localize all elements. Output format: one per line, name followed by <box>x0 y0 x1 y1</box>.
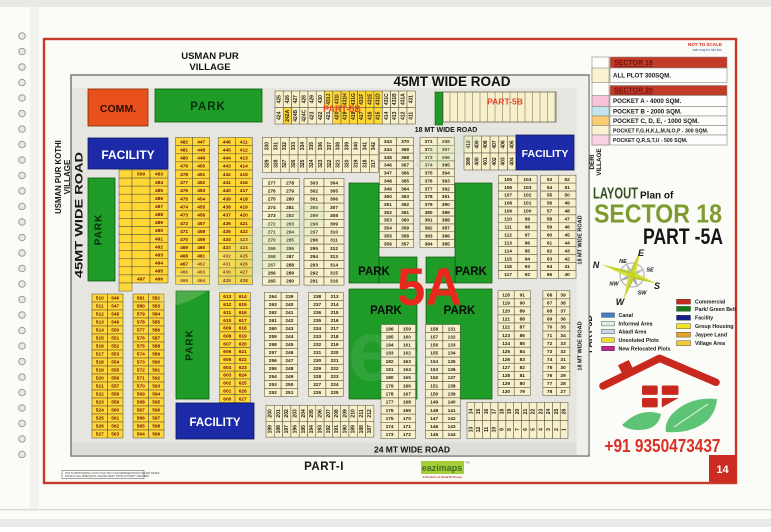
svg-text:21: 21 <box>523 409 529 415</box>
svg-text:491: 491 <box>155 236 163 242</box>
svg-text:294: 294 <box>310 254 318 260</box>
svg-text:195: 195 <box>301 425 307 434</box>
svg-text:137: 137 <box>448 375 456 381</box>
svg-text:449: 449 <box>197 156 205 162</box>
svg-text:566: 566 <box>137 416 145 422</box>
svg-text:330: 330 <box>264 142 270 151</box>
svg-text:624: 624 <box>239 373 247 379</box>
svg-text:427: 427 <box>293 95 299 104</box>
svg-text:361: 361 <box>401 210 409 216</box>
svg-text:559: 559 <box>111 400 119 406</box>
svg-text:408: 408 <box>483 140 489 149</box>
svg-text:380: 380 <box>425 210 433 216</box>
svg-text:14: 14 <box>716 464 729 476</box>
svg-text:13: 13 <box>468 427 474 433</box>
svg-text:440: 440 <box>223 188 231 194</box>
svg-text:257: 257 <box>269 350 277 356</box>
svg-text:404: 404 <box>509 157 515 166</box>
svg-text:389: 389 <box>442 210 450 216</box>
svg-text:296: 296 <box>310 238 318 244</box>
svg-text:569: 569 <box>137 392 145 398</box>
svg-text:74: 74 <box>547 357 553 363</box>
svg-text:306: 306 <box>330 197 338 203</box>
svg-text:109: 109 <box>504 209 512 215</box>
svg-text:28: 28 <box>560 381 566 387</box>
svg-text:201: 201 <box>276 409 282 418</box>
svg-text:444: 444 <box>223 156 231 162</box>
svg-text:354: 354 <box>384 226 392 232</box>
svg-text:412: 412 <box>400 111 406 120</box>
svg-text:522: 522 <box>96 392 104 398</box>
svg-text:413: 413 <box>240 156 248 162</box>
svg-text:260: 260 <box>269 326 277 332</box>
svg-text:385: 385 <box>442 241 450 247</box>
svg-text:18 MT WIDE ROAD: 18 MT WIDE ROAD <box>578 215 584 264</box>
svg-text:103: 103 <box>523 185 531 191</box>
svg-text:365: 365 <box>401 178 409 184</box>
svg-text:65: 65 <box>547 272 553 278</box>
svg-text:174: 174 <box>386 424 394 430</box>
svg-text:NE: NE <box>619 259 627 265</box>
svg-text:348: 348 <box>384 178 392 184</box>
svg-text:547: 547 <box>111 304 119 310</box>
svg-text:THIS IS APPROXIMATE LAYOUT PLA: THIS IS APPROXIMATE LAYOUT PLAN ONLY FOR… <box>65 472 160 475</box>
svg-text:124: 124 <box>502 341 510 347</box>
svg-text:111: 111 <box>504 225 512 231</box>
svg-text:485: 485 <box>155 188 163 194</box>
svg-text:175: 175 <box>386 416 394 422</box>
svg-text:188: 188 <box>359 425 365 434</box>
svg-text:Group Housing: Group Housing <box>695 324 734 330</box>
svg-text:323: 323 <box>318 159 324 168</box>
svg-text:VILLAGE: VILLAGE <box>189 62 230 73</box>
svg-text:255: 255 <box>269 366 277 372</box>
svg-text:477: 477 <box>180 180 188 186</box>
svg-text:384: 384 <box>425 241 433 247</box>
svg-text:382: 382 <box>425 226 433 232</box>
svg-text:82: 82 <box>520 365 526 371</box>
svg-text:521: 521 <box>96 384 104 390</box>
svg-text:125: 125 <box>502 349 510 355</box>
svg-text:123: 123 <box>502 333 510 339</box>
svg-text:332: 332 <box>282 142 288 151</box>
svg-text:205: 205 <box>309 409 315 418</box>
svg-text:1: 1 <box>562 428 568 431</box>
svg-text:387: 387 <box>442 226 450 232</box>
svg-text:549: 549 <box>111 320 119 326</box>
svg-text:377: 377 <box>425 186 433 192</box>
svg-text:211: 211 <box>359 409 365 417</box>
svg-text:5: 5 <box>531 428 537 431</box>
svg-text:10: 10 <box>492 427 498 433</box>
svg-text:A Product of SmartR Group: A Product of SmartR Group <box>422 475 461 479</box>
svg-text:349: 349 <box>384 186 392 192</box>
svg-text:454: 454 <box>197 196 205 202</box>
svg-text:226: 226 <box>313 390 321 396</box>
svg-text:621: 621 <box>239 349 247 355</box>
svg-text:59: 59 <box>547 225 553 231</box>
svg-text:133: 133 <box>448 343 456 349</box>
svg-text:USMAN PUR: USMAN PUR <box>181 51 239 62</box>
svg-text:520: 520 <box>96 376 104 382</box>
svg-text:110: 110 <box>504 217 512 223</box>
svg-text:38: 38 <box>560 301 566 307</box>
svg-text:423: 423 <box>310 111 316 120</box>
svg-text:556: 556 <box>111 376 119 382</box>
svg-text:576: 576 <box>137 336 145 342</box>
svg-text:254: 254 <box>269 374 277 380</box>
svg-text:187: 187 <box>367 425 373 434</box>
svg-text:371: 371 <box>425 139 433 145</box>
svg-text:253: 253 <box>269 382 277 388</box>
svg-text:438: 438 <box>223 205 231 211</box>
svg-text:232: 232 <box>313 342 321 348</box>
svg-text:SECTOR 18: SECTOR 18 <box>614 60 653 67</box>
svg-text:170: 170 <box>403 416 411 422</box>
svg-text:570: 570 <box>137 384 145 390</box>
svg-text:483: 483 <box>155 172 163 178</box>
svg-text:115: 115 <box>504 256 512 262</box>
svg-text:460: 460 <box>197 245 205 251</box>
svg-text:197: 197 <box>284 425 290 434</box>
svg-text:353: 353 <box>384 218 392 224</box>
svg-text:509: 509 <box>137 172 145 178</box>
svg-text:431A: 431A <box>400 93 406 105</box>
svg-text:34: 34 <box>560 333 566 339</box>
svg-text:sale map for site info: sale map for site info <box>693 48 723 52</box>
svg-text:40: 40 <box>565 272 571 278</box>
svg-text:493: 493 <box>155 252 163 258</box>
svg-text:105: 105 <box>504 177 512 183</box>
svg-text:217: 217 <box>331 326 339 332</box>
svg-text:37: 37 <box>560 309 566 315</box>
svg-text:472: 472 <box>180 221 188 227</box>
svg-text:233: 233 <box>313 334 321 340</box>
svg-text:492: 492 <box>155 244 163 250</box>
svg-text:Facility: Facility <box>695 316 713 322</box>
svg-text:428: 428 <box>301 95 307 104</box>
svg-text:443: 443 <box>223 164 231 170</box>
svg-text:424B: 424B <box>293 109 299 121</box>
svg-text:484: 484 <box>155 180 163 186</box>
svg-text:564: 564 <box>137 432 145 438</box>
svg-text:139: 139 <box>448 392 456 398</box>
svg-text:471: 471 <box>180 229 188 235</box>
svg-text:329: 329 <box>264 159 270 168</box>
svg-text:277: 277 <box>268 180 276 186</box>
svg-text:64: 64 <box>547 264 553 270</box>
svg-text:320: 320 <box>345 159 351 168</box>
svg-text:276: 276 <box>268 189 276 195</box>
svg-text:431D: 431D <box>376 93 382 105</box>
svg-text:401: 401 <box>483 157 489 166</box>
svg-text:36: 36 <box>560 317 566 323</box>
svg-text:289: 289 <box>286 271 294 277</box>
svg-text:107: 107 <box>504 193 512 199</box>
svg-text:FACILITY: FACILITY <box>189 417 240 429</box>
svg-text:355: 355 <box>384 234 392 240</box>
svg-text:274: 274 <box>268 205 276 211</box>
svg-text:313: 313 <box>330 254 338 260</box>
svg-text:416: 416 <box>367 111 373 120</box>
svg-text:415: 415 <box>240 172 248 178</box>
svg-text:611: 611 <box>223 310 231 316</box>
svg-text:351: 351 <box>384 202 392 208</box>
svg-text:77: 77 <box>547 381 553 387</box>
svg-text:445: 445 <box>223 147 231 153</box>
svg-text:122: 122 <box>502 325 510 331</box>
svg-text:259: 259 <box>269 334 277 340</box>
svg-text:172: 172 <box>403 432 411 438</box>
svg-text:510: 510 <box>96 296 104 302</box>
svg-text:523: 523 <box>96 400 104 406</box>
svg-text:435: 435 <box>223 229 231 235</box>
svg-text:PART-5B: PART-5B <box>487 97 523 107</box>
svg-text:526: 526 <box>96 424 104 430</box>
svg-text:370: 370 <box>401 139 409 145</box>
svg-text:411: 411 <box>240 139 248 145</box>
svg-text:53: 53 <box>547 177 553 183</box>
svg-text:191: 191 <box>334 425 340 434</box>
svg-text:571: 571 <box>137 376 145 382</box>
svg-text:341: 341 <box>362 142 368 151</box>
svg-text:100: 100 <box>523 209 531 215</box>
svg-text:138: 138 <box>448 383 456 389</box>
svg-text:PART-I: PART-I <box>304 461 344 473</box>
svg-text:242: 242 <box>285 318 293 324</box>
svg-text:68: 68 <box>547 309 553 315</box>
svg-text:476: 476 <box>180 188 188 194</box>
svg-text:425: 425 <box>277 95 283 104</box>
svg-text:473: 473 <box>180 213 188 219</box>
svg-text:101: 101 <box>523 201 531 207</box>
svg-text:609: 609 <box>223 326 231 332</box>
svg-text:359: 359 <box>401 226 409 232</box>
svg-text:85: 85 <box>520 341 526 347</box>
svg-text:347: 347 <box>384 171 392 177</box>
svg-text:412: 412 <box>240 147 248 153</box>
svg-text:194: 194 <box>309 425 315 434</box>
svg-text:134: 134 <box>448 351 456 357</box>
svg-text:326: 326 <box>291 159 297 168</box>
svg-text:244: 244 <box>285 334 293 340</box>
svg-text:17: 17 <box>492 409 498 415</box>
svg-text:190: 190 <box>342 425 348 434</box>
svg-text:26: 26 <box>562 409 568 415</box>
svg-text:584: 584 <box>152 312 160 318</box>
svg-text:459: 459 <box>197 237 205 243</box>
svg-text:44: 44 <box>565 240 571 246</box>
svg-text:470: 470 <box>180 237 188 243</box>
svg-text:56: 56 <box>547 201 553 207</box>
svg-text:45MT WIDE ROAD: 45MT WIDE ROAD <box>393 74 510 89</box>
svg-text:548: 548 <box>111 312 119 318</box>
svg-text:421: 421 <box>240 221 248 227</box>
svg-text:8: 8 <box>507 428 513 431</box>
svg-text:46: 46 <box>565 225 571 231</box>
svg-text:27: 27 <box>560 389 566 395</box>
svg-text:431I: 431I <box>334 94 340 104</box>
svg-text:210: 210 <box>351 409 357 418</box>
svg-text:147: 147 <box>430 416 438 422</box>
svg-text:419: 419 <box>240 205 248 211</box>
svg-text:553: 553 <box>111 352 119 358</box>
svg-text:607: 607 <box>223 341 231 347</box>
svg-text:601: 601 <box>223 388 231 394</box>
svg-text:515: 515 <box>96 336 104 342</box>
svg-text:203: 203 <box>293 409 299 418</box>
svg-text:448: 448 <box>197 147 205 153</box>
svg-text:557: 557 <box>111 384 119 390</box>
svg-text:431C: 431C <box>384 93 390 105</box>
svg-text:106: 106 <box>504 185 512 191</box>
svg-text:NOT TO SCALE: NOT TO SCALE <box>688 42 722 47</box>
svg-text:87: 87 <box>520 325 526 331</box>
svg-text:317: 317 <box>371 159 377 168</box>
svg-text:PARK: PARK <box>358 266 390 278</box>
svg-text:24: 24 <box>546 409 552 415</box>
svg-text:198: 198 <box>276 425 282 434</box>
svg-text:47: 47 <box>565 217 571 223</box>
svg-text:50: 50 <box>565 193 571 199</box>
svg-text:204: 204 <box>301 409 307 418</box>
svg-text:209: 209 <box>342 409 348 418</box>
svg-text:364: 364 <box>401 186 409 192</box>
svg-text:327: 327 <box>282 159 288 168</box>
svg-text:475: 475 <box>180 196 188 202</box>
svg-text:279: 279 <box>286 189 294 195</box>
svg-text:239: 239 <box>285 294 293 300</box>
svg-text:456: 456 <box>197 213 205 219</box>
svg-text:62: 62 <box>547 248 553 254</box>
svg-text:129: 129 <box>502 381 510 387</box>
svg-text:455: 455 <box>197 205 205 211</box>
svg-text:57: 57 <box>547 209 553 215</box>
svg-text:242A: 242A <box>285 109 291 121</box>
svg-text:426: 426 <box>285 95 291 104</box>
svg-text:437: 437 <box>223 213 231 219</box>
svg-text:+91 9350473437: +91 9350473437 <box>605 435 721 456</box>
svg-text:394: 394 <box>442 171 450 177</box>
svg-text:293: 293 <box>310 262 318 268</box>
svg-text:340: 340 <box>353 142 359 151</box>
svg-text:623: 623 <box>239 365 247 371</box>
svg-text:403: 403 <box>501 157 507 166</box>
svg-text:79: 79 <box>520 389 526 395</box>
svg-text:95: 95 <box>525 248 531 254</box>
svg-text:417: 417 <box>240 188 248 194</box>
svg-text:567: 567 <box>137 408 145 414</box>
svg-text:Park/ Green Belt: Park/ Green Belt <box>695 307 736 313</box>
svg-text:431B: 431B <box>392 93 398 105</box>
svg-text:512: 512 <box>96 312 104 318</box>
svg-text:20: 20 <box>515 409 521 415</box>
svg-text:447: 447 <box>197 139 205 145</box>
svg-text:84: 84 <box>520 349 526 355</box>
svg-text:126: 126 <box>502 357 510 363</box>
svg-text:ALL PLOT 300SQM.: ALL PLOT 300SQM. <box>613 72 671 79</box>
svg-text:469: 469 <box>180 245 188 251</box>
svg-text:375: 375 <box>425 171 433 177</box>
svg-text:94: 94 <box>525 256 531 262</box>
svg-text:453: 453 <box>197 188 205 194</box>
svg-text:140: 140 <box>448 400 456 406</box>
svg-text:618: 618 <box>239 326 247 332</box>
svg-text:212: 212 <box>367 409 373 418</box>
svg-text:346: 346 <box>384 163 392 169</box>
svg-text:352: 352 <box>384 210 392 216</box>
svg-text:7: 7 <box>515 428 521 431</box>
svg-text:597: 597 <box>152 416 160 422</box>
svg-text:91: 91 <box>520 293 526 299</box>
svg-text:572: 572 <box>137 368 145 374</box>
svg-text:478: 478 <box>180 172 188 178</box>
svg-text:278: 278 <box>286 180 294 186</box>
svg-text:78: 78 <box>547 389 553 395</box>
svg-text:252: 252 <box>269 390 277 396</box>
svg-text:243: 243 <box>285 326 293 332</box>
svg-text:Abadi Area: Abadi Area <box>619 330 647 336</box>
svg-text:441: 441 <box>223 180 231 186</box>
svg-text:431: 431 <box>409 95 415 104</box>
svg-text:393: 393 <box>442 178 450 184</box>
svg-text:81: 81 <box>520 373 526 379</box>
svg-text:208: 208 <box>334 409 340 418</box>
svg-text:392: 392 <box>442 186 450 192</box>
svg-text:52: 52 <box>565 177 571 183</box>
svg-text:Unsoluted Plots: Unsoluted Plots <box>619 338 659 344</box>
svg-text:49: 49 <box>565 201 571 207</box>
svg-text:295: 295 <box>310 246 318 252</box>
svg-text:216: 216 <box>331 318 339 324</box>
svg-text:251: 251 <box>285 390 293 396</box>
svg-text:227: 227 <box>313 382 321 388</box>
svg-text:514: 514 <box>96 328 104 334</box>
svg-text:234: 234 <box>313 326 321 332</box>
svg-text:337: 337 <box>327 142 333 151</box>
svg-text:113: 113 <box>504 240 512 246</box>
svg-text:76: 76 <box>547 373 553 379</box>
svg-text:311: 311 <box>330 238 338 244</box>
svg-text:367: 367 <box>401 163 409 169</box>
svg-text:319: 319 <box>353 159 359 168</box>
svg-text:55: 55 <box>547 193 553 199</box>
svg-text:70: 70 <box>547 325 553 331</box>
svg-text:415: 415 <box>376 111 382 120</box>
svg-text:342: 342 <box>371 142 377 151</box>
svg-text:225: 225 <box>331 390 339 396</box>
svg-text:315: 315 <box>330 271 338 277</box>
svg-text:603: 603 <box>223 373 231 379</box>
svg-text:229: 229 <box>313 366 321 372</box>
svg-text:596: 596 <box>152 408 160 414</box>
svg-text:42: 42 <box>565 256 571 262</box>
svg-text:86: 86 <box>520 333 526 339</box>
svg-text:PART -5A: PART -5A <box>643 224 723 249</box>
svg-text:149: 149 <box>430 400 438 406</box>
svg-text:Canal: Canal <box>619 313 634 319</box>
svg-text:83: 83 <box>520 357 526 363</box>
svg-text:23: 23 <box>538 409 544 415</box>
svg-text:325: 325 <box>300 159 306 168</box>
svg-text:604: 604 <box>223 365 231 371</box>
svg-text:494: 494 <box>155 261 163 267</box>
svg-text:230: 230 <box>313 358 321 364</box>
svg-text:222: 222 <box>331 366 339 372</box>
svg-text:223: 223 <box>331 374 339 380</box>
svg-text:424: 424 <box>277 111 283 120</box>
svg-text:265: 265 <box>268 279 276 285</box>
